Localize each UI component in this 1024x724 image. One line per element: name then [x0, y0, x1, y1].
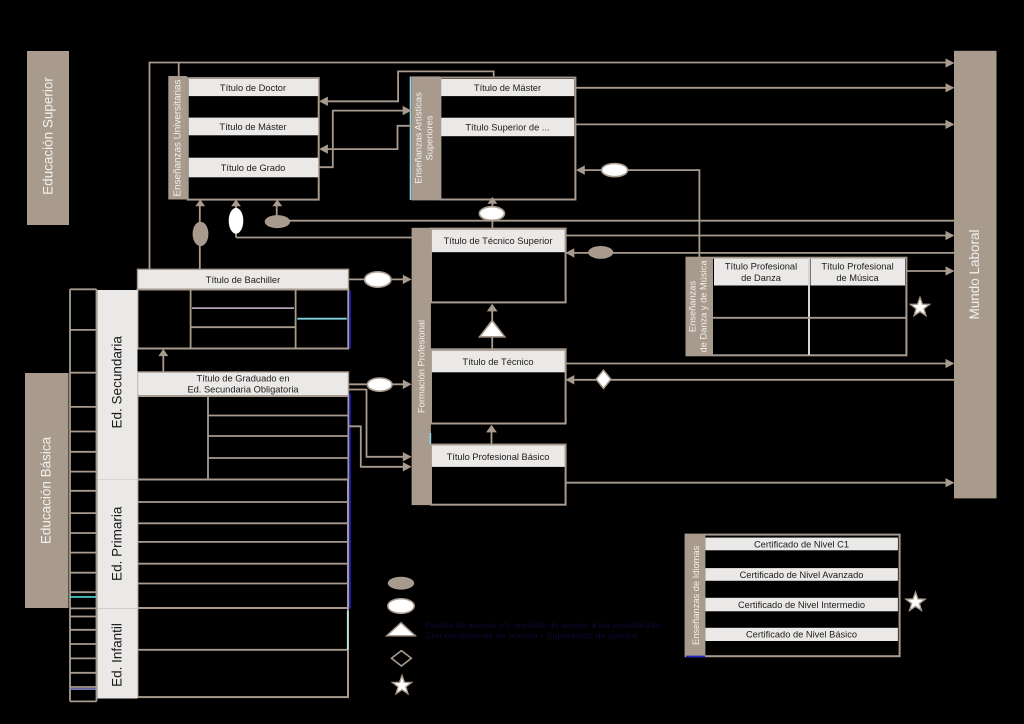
svg-text:Prueba de acceso y/o requisito: Prueba de acceso y/o requisito de acceso…: [425, 620, 660, 630]
svg-text:Título de Máster: Título de Máster: [219, 122, 286, 132]
svg-text:Título de Máster: Título de Máster: [474, 83, 541, 93]
svg-text:de Danza y de Música: de Danza y de Música: [698, 260, 708, 353]
svg-text:Título Superior de ...: Título Superior de ...: [465, 122, 549, 132]
svg-text:Título de Técnico: Título de Técnico: [462, 357, 533, 367]
svg-text:Educación Básica: Educación Básica: [39, 436, 54, 544]
svg-text:Título Profesional: Título Profesional: [821, 262, 893, 272]
svg-text:Título Profesional Básico: Título Profesional Básico: [447, 452, 550, 462]
svg-text:Ed. Secundaria Obligatoria: Ed. Secundaria Obligatoria: [187, 385, 299, 395]
svg-text:Ed. Secundaria: Ed. Secundaria: [110, 336, 125, 429]
svg-text:Enseñanzas Artísticas: Enseñanzas Artísticas: [413, 92, 423, 184]
svg-text:Certificado de Nivel Avanzado: Certificado de Nivel Avanzado: [740, 570, 864, 580]
svg-text:Ed. Infantil: Ed. Infantil: [110, 623, 125, 687]
svg-text:Enseñanzas de Idiomas: Enseñanzas de Idiomas: [691, 545, 701, 645]
svg-text:de Música: de Música: [836, 273, 879, 283]
svg-text:Ed. Primaria: Ed. Primaria: [110, 506, 125, 581]
svg-text:Certificado de Nivel C1: Certificado de Nivel C1: [754, 539, 849, 549]
svg-text:Superiores: Superiores: [424, 115, 434, 160]
svg-text:Enseñanzas Universitarias: Enseñanzas Universitarias: [172, 79, 183, 196]
svg-text:Título de Graduado en: Título de Graduado en: [196, 374, 289, 384]
svg-text:Título de Grado: Título de Grado: [221, 163, 286, 173]
svg-text:Mundo Laboral: Mundo Laboral: [967, 229, 982, 319]
svg-text:Título de Bachiller: Título de Bachiller: [206, 275, 280, 285]
svg-text:Título de Técnico Superior: Título de Técnico Superior: [444, 236, 553, 246]
svg-text:de Danza: de Danza: [741, 273, 782, 283]
svg-text:Certificado de Nivel Intermedi: Certificado de Nivel Intermedio: [738, 600, 865, 610]
svg-text:Enseñanzas: Enseñanzas: [687, 281, 697, 333]
svg-text:Con condiciones de acceso • Su: Con condiciones de acceso • Superación d…: [425, 631, 637, 641]
svg-text:Formación Profesional: Formación Profesional: [416, 320, 426, 413]
svg-text:Certificado de Nivel Básico: Certificado de Nivel Básico: [746, 630, 857, 640]
svg-text:Título de Doctor: Título de Doctor: [220, 83, 286, 93]
svg-text:Título Profesional: Título Profesional: [725, 262, 797, 272]
svg-text:Educación Superior: Educación Superior: [41, 77, 56, 195]
